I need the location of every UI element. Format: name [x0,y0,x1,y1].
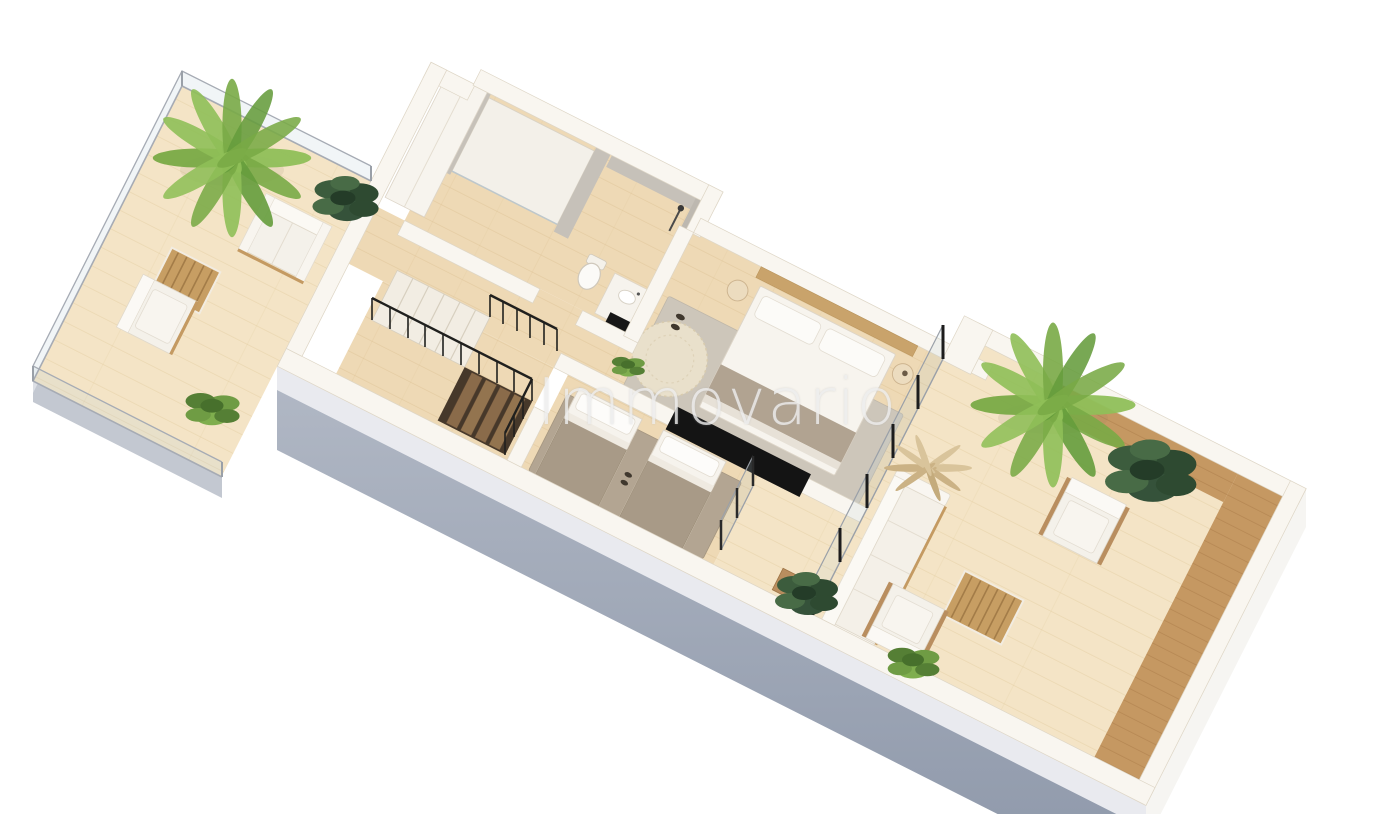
shrub [888,648,940,679]
shrub [612,357,645,377]
floorplan-svg [0,0,1400,814]
floorplan-render: Immovario [0,0,1400,814]
shrub [186,393,240,425]
